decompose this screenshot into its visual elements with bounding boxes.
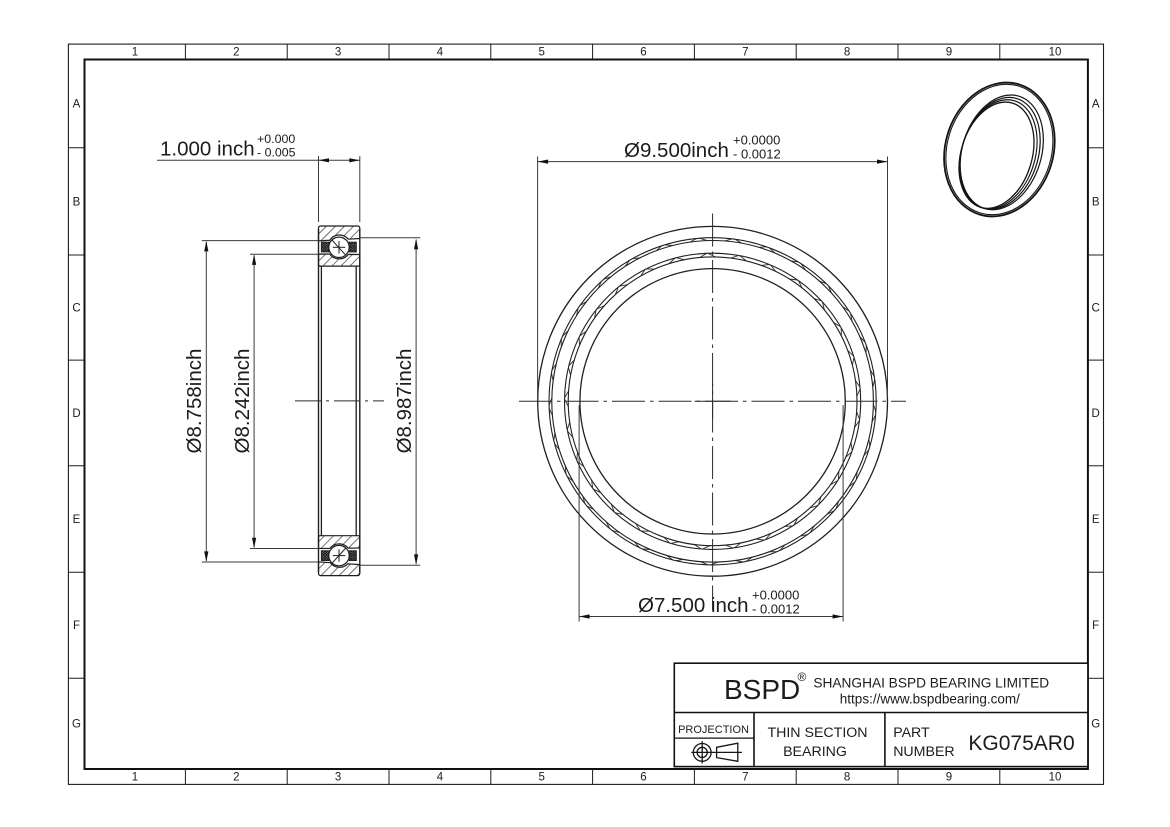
svg-text:2: 2: [233, 47, 239, 59]
svg-text:G: G: [1091, 719, 1100, 731]
svg-text:PROJECTION: PROJECTION: [678, 724, 749, 736]
svg-text:SHANGHAI BSPD BEARING LIMITED: SHANGHAI BSPD BEARING LIMITED: [813, 676, 1049, 691]
svg-text:3: 3: [335, 772, 341, 784]
svg-text:9: 9: [946, 772, 952, 784]
svg-text:E: E: [73, 514, 81, 526]
svg-text:®: ®: [798, 670, 807, 684]
svg-text:8: 8: [844, 772, 850, 784]
svg-text:https://www.bspdbearing.com/: https://www.bspdbearing.com/: [840, 692, 1020, 707]
svg-text:Ø8.758inch: Ø8.758inch: [183, 349, 206, 454]
svg-text:8: 8: [844, 47, 850, 59]
svg-text:Ø8.242inch: Ø8.242inch: [231, 349, 254, 454]
svg-text:Ø7.500 inch: Ø7.500 inch: [638, 594, 749, 617]
svg-text:3: 3: [335, 47, 341, 59]
svg-text:BSPD: BSPD: [724, 674, 800, 705]
svg-text:F: F: [1092, 620, 1099, 632]
svg-text:1: 1: [132, 47, 138, 59]
svg-text:+0.0000: +0.0000: [752, 588, 799, 603]
svg-text:NUMBER: NUMBER: [893, 744, 954, 760]
svg-text:F: F: [73, 620, 80, 632]
svg-text:1: 1: [132, 772, 138, 784]
svg-text:THIN SECTION: THIN SECTION: [767, 725, 867, 741]
svg-text:KG075AR0: KG075AR0: [968, 732, 1074, 755]
svg-text:- 0.005: - 0.005: [257, 146, 296, 160]
svg-text:4: 4: [437, 772, 444, 784]
svg-text:C: C: [72, 303, 80, 315]
svg-text:D: D: [1092, 408, 1100, 420]
svg-text:1.000 inch: 1.000 inch: [160, 138, 255, 161]
svg-text:2: 2: [233, 772, 239, 784]
svg-text:E: E: [1092, 514, 1100, 526]
svg-text:+0.0000: +0.0000: [733, 133, 780, 148]
svg-text:7: 7: [742, 772, 748, 784]
svg-text:A: A: [73, 99, 81, 111]
svg-text:B: B: [1092, 196, 1100, 208]
svg-text:10: 10: [1049, 47, 1062, 59]
svg-text:7: 7: [742, 47, 748, 59]
svg-text:5: 5: [538, 772, 544, 784]
svg-text:G: G: [72, 719, 81, 731]
svg-text:B: B: [73, 196, 81, 208]
svg-text:C: C: [1092, 303, 1100, 315]
svg-text:6: 6: [640, 772, 646, 784]
svg-text:10: 10: [1049, 772, 1062, 784]
svg-text:D: D: [72, 408, 80, 420]
svg-text:A: A: [1092, 99, 1100, 111]
svg-text:6: 6: [640, 47, 646, 59]
svg-text:- 0.0012: - 0.0012: [752, 602, 800, 617]
svg-text:5: 5: [538, 47, 544, 59]
svg-text:PART: PART: [893, 725, 930, 741]
svg-text:- 0.0012: - 0.0012: [733, 147, 781, 162]
svg-text:Ø9.500inch: Ø9.500inch: [624, 139, 729, 162]
svg-text:BEARING: BEARING: [783, 744, 847, 760]
svg-text:4: 4: [437, 47, 444, 59]
svg-text:9: 9: [946, 47, 952, 59]
svg-text:+0.000: +0.000: [257, 132, 295, 146]
svg-text:Ø8.987inch: Ø8.987inch: [393, 349, 416, 454]
